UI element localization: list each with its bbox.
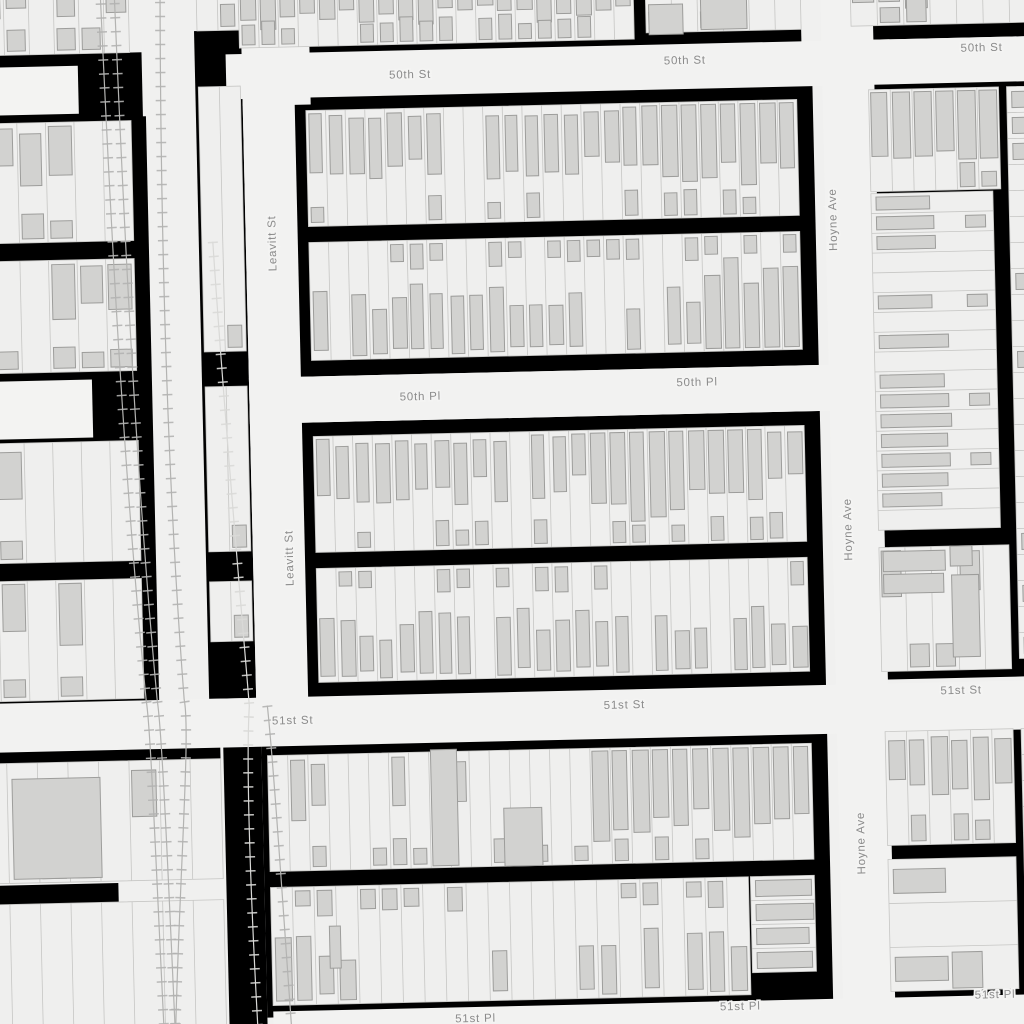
building <box>504 807 543 866</box>
building <box>558 19 571 38</box>
building <box>952 574 981 657</box>
building <box>52 264 76 319</box>
map-rotated-layer: 50th St50th St50th St50th Pl50th Pl51st … <box>0 0 1024 1024</box>
building <box>604 111 619 163</box>
building <box>356 443 369 502</box>
building <box>711 516 724 540</box>
building <box>783 266 800 346</box>
building <box>437 0 452 8</box>
building <box>882 473 948 487</box>
building <box>51 221 73 239</box>
building <box>1013 143 1024 160</box>
building <box>508 242 521 258</box>
building <box>262 21 275 45</box>
building <box>879 334 949 349</box>
building <box>880 374 944 388</box>
building <box>329 115 343 174</box>
building <box>510 305 524 346</box>
building <box>595 0 611 10</box>
building <box>569 293 583 347</box>
building <box>655 837 669 860</box>
street-label: 50th St <box>960 42 1002 55</box>
building <box>470 295 484 350</box>
building <box>881 413 952 428</box>
building <box>960 162 975 186</box>
building <box>439 17 452 41</box>
building <box>457 569 470 588</box>
building <box>410 244 423 269</box>
building <box>0 352 18 370</box>
open-parcel <box>0 66 79 117</box>
building <box>649 4 684 35</box>
building <box>339 572 352 586</box>
building <box>667 287 681 344</box>
building <box>771 624 786 665</box>
building <box>642 106 658 165</box>
building <box>410 284 424 349</box>
building <box>309 114 323 173</box>
building <box>556 620 571 671</box>
building <box>311 764 325 805</box>
building <box>783 234 796 252</box>
street-label: 50th Pl <box>676 376 718 389</box>
building <box>743 197 756 213</box>
building <box>0 129 13 166</box>
building <box>111 349 133 367</box>
building <box>655 616 668 671</box>
building <box>517 608 530 667</box>
building <box>851 0 873 3</box>
building <box>696 839 710 859</box>
building <box>529 305 543 347</box>
building <box>575 846 588 861</box>
building <box>757 951 813 968</box>
building <box>242 25 255 45</box>
building <box>534 520 547 544</box>
building <box>382 889 397 910</box>
building <box>649 432 666 518</box>
street-label: 51st St <box>940 684 982 697</box>
building <box>6 0 26 8</box>
building <box>430 749 459 866</box>
building <box>664 193 677 216</box>
building <box>329 926 341 968</box>
building <box>957 90 976 159</box>
building <box>616 616 630 672</box>
building <box>979 90 998 158</box>
building <box>427 114 442 175</box>
building <box>709 932 724 992</box>
building <box>359 571 372 588</box>
building <box>220 4 234 26</box>
street-label: 51st Pl <box>975 989 1016 1002</box>
building <box>536 0 552 22</box>
building <box>19 134 41 186</box>
building <box>82 352 104 368</box>
building <box>567 240 580 261</box>
building <box>358 532 371 547</box>
building <box>496 0 511 11</box>
building <box>672 525 685 541</box>
building <box>578 16 591 37</box>
building <box>892 92 911 158</box>
building <box>451 296 465 354</box>
building <box>755 879 811 896</box>
building <box>681 105 697 182</box>
building <box>871 92 888 156</box>
building <box>313 846 327 866</box>
building <box>793 626 809 667</box>
building <box>499 14 512 39</box>
building <box>878 0 900 2</box>
building <box>340 960 357 1000</box>
building <box>734 618 748 669</box>
building <box>685 238 698 261</box>
building <box>317 890 332 916</box>
building <box>705 236 718 254</box>
building <box>592 751 610 842</box>
building <box>387 113 403 167</box>
building <box>527 193 540 218</box>
building <box>59 583 83 645</box>
building <box>358 0 374 22</box>
building <box>615 0 630 6</box>
building <box>759 103 776 163</box>
parcel-row <box>849 0 1024 26</box>
building <box>590 433 606 504</box>
building <box>880 7 900 22</box>
building <box>632 750 650 832</box>
building <box>439 613 452 673</box>
street-label: Hoyne Ave <box>855 812 868 875</box>
building <box>275 938 292 1002</box>
building <box>447 887 462 911</box>
building <box>492 951 507 991</box>
open-parcel <box>0 379 93 441</box>
building <box>579 946 594 990</box>
building <box>497 617 512 675</box>
building <box>494 441 508 501</box>
building <box>430 294 443 349</box>
building <box>400 17 413 42</box>
building <box>415 444 428 489</box>
building <box>404 888 419 906</box>
building <box>473 440 487 477</box>
building <box>623 107 637 165</box>
building <box>48 126 72 175</box>
building <box>544 114 559 172</box>
building <box>296 936 312 1000</box>
building <box>787 432 802 474</box>
building <box>675 631 690 669</box>
street-label: 51st St <box>272 715 314 728</box>
building <box>750 517 763 539</box>
building <box>299 0 315 13</box>
building <box>613 521 626 542</box>
building <box>360 889 375 909</box>
building <box>518 23 531 38</box>
building <box>587 240 600 257</box>
building <box>320 618 336 676</box>
street-label: Hoyne Ave <box>842 498 855 561</box>
building <box>791 561 804 585</box>
building <box>536 630 550 670</box>
building <box>538 20 551 38</box>
building <box>723 190 736 214</box>
building <box>621 883 636 898</box>
building <box>290 760 305 821</box>
building <box>488 202 501 218</box>
building <box>414 848 427 864</box>
building <box>877 235 936 249</box>
building <box>596 621 609 666</box>
building <box>884 573 944 593</box>
building <box>61 677 83 696</box>
building <box>756 903 814 920</box>
building <box>893 868 946 893</box>
building <box>880 393 948 408</box>
building <box>82 28 100 50</box>
building <box>700 0 747 30</box>
building <box>627 309 641 349</box>
building <box>914 91 933 156</box>
building <box>606 240 619 260</box>
building <box>240 0 256 20</box>
building <box>626 239 639 259</box>
building <box>279 0 295 17</box>
building <box>687 302 701 343</box>
building <box>950 546 972 566</box>
building <box>341 620 356 676</box>
building <box>373 309 388 354</box>
building <box>708 881 723 907</box>
building <box>535 567 548 591</box>
building <box>457 617 470 674</box>
street-label: 50th Pl <box>400 391 442 404</box>
building <box>757 927 810 944</box>
building <box>457 0 472 10</box>
building <box>555 567 568 592</box>
building <box>316 439 330 495</box>
building <box>615 839 629 861</box>
building <box>7 30 25 51</box>
building <box>693 749 709 809</box>
street-label: 51st Pl <box>720 1000 761 1013</box>
street-label: Leavitt St <box>283 530 296 586</box>
building <box>882 453 951 468</box>
building <box>684 189 697 215</box>
building <box>982 171 997 186</box>
building <box>883 493 942 507</box>
map-viewport[interactable]: 50th St50th St50th St50th Pl50th Pl51st … <box>0 0 1024 1024</box>
building <box>793 746 809 813</box>
building <box>313 291 328 350</box>
building <box>688 431 705 490</box>
building <box>965 215 985 227</box>
building <box>594 566 607 589</box>
building <box>489 287 504 352</box>
building <box>360 24 373 42</box>
building <box>740 103 757 184</box>
street-label: Leavitt St <box>266 215 279 271</box>
building <box>767 432 781 478</box>
building <box>553 437 567 492</box>
building <box>695 628 708 668</box>
building <box>548 241 561 258</box>
building <box>753 747 770 824</box>
building <box>22 214 44 239</box>
building <box>505 115 518 171</box>
building <box>967 294 987 306</box>
building <box>910 644 930 667</box>
building <box>971 452 991 464</box>
building <box>909 740 925 785</box>
street-label: 50th St <box>664 54 706 67</box>
building <box>931 736 949 794</box>
building <box>644 928 659 988</box>
building <box>564 115 578 174</box>
building <box>633 525 646 542</box>
building <box>436 520 449 545</box>
building <box>572 434 586 475</box>
building <box>1012 91 1024 108</box>
building <box>752 606 766 667</box>
building <box>525 116 539 176</box>
building <box>435 441 450 488</box>
building <box>731 946 747 990</box>
building <box>889 741 906 780</box>
building <box>747 429 762 499</box>
building <box>1 541 23 559</box>
building <box>311 207 324 222</box>
building <box>420 21 433 41</box>
building <box>911 815 926 841</box>
building <box>995 738 1012 783</box>
building <box>392 757 406 806</box>
building <box>295 891 310 906</box>
street-label: 51st Pl <box>455 1012 496 1024</box>
building <box>584 112 599 157</box>
building <box>661 105 678 177</box>
building <box>643 883 658 905</box>
building <box>57 28 75 50</box>
building <box>906 0 926 22</box>
building <box>969 393 989 405</box>
building <box>686 882 701 897</box>
building <box>408 116 422 159</box>
building <box>687 933 703 989</box>
building <box>895 956 948 981</box>
building <box>56 0 74 17</box>
building <box>728 430 744 493</box>
building <box>392 298 407 349</box>
building <box>456 530 469 545</box>
building <box>612 750 628 829</box>
building <box>556 0 571 14</box>
building <box>360 636 374 671</box>
building <box>1012 117 1024 133</box>
street-label: Hoyne Ave <box>827 188 840 251</box>
building <box>610 432 626 504</box>
street-label: 51st St <box>604 699 646 712</box>
building <box>704 275 721 348</box>
building <box>773 747 790 819</box>
building <box>4 680 26 698</box>
building <box>669 431 685 510</box>
building <box>380 640 393 678</box>
building <box>319 0 335 19</box>
building <box>475 521 488 545</box>
building <box>2 584 26 631</box>
building <box>489 242 502 266</box>
building <box>652 750 669 818</box>
building <box>876 216 934 230</box>
building <box>281 29 294 44</box>
building <box>12 777 102 879</box>
building <box>454 443 468 504</box>
building <box>713 748 730 830</box>
building <box>733 748 750 838</box>
building <box>336 446 349 498</box>
building <box>763 268 780 347</box>
building <box>496 568 509 587</box>
building <box>973 737 989 800</box>
building <box>430 244 443 261</box>
building <box>720 104 736 163</box>
building <box>701 104 718 178</box>
building <box>400 624 415 672</box>
building <box>81 266 103 303</box>
building <box>53 347 75 368</box>
building <box>625 190 638 215</box>
building <box>486 116 500 179</box>
building <box>391 244 404 261</box>
building <box>708 430 725 493</box>
building <box>602 945 617 994</box>
building <box>369 118 382 179</box>
building <box>936 91 955 151</box>
building <box>395 441 409 500</box>
building <box>1017 351 1024 368</box>
building <box>349 118 365 174</box>
building <box>0 452 22 499</box>
building <box>883 550 945 571</box>
building <box>228 325 242 347</box>
building <box>952 951 983 988</box>
building <box>975 820 990 840</box>
building <box>380 23 393 42</box>
building <box>531 435 544 499</box>
building <box>338 0 353 10</box>
building <box>549 305 564 345</box>
building <box>779 103 794 169</box>
building <box>770 512 783 538</box>
building <box>954 814 969 840</box>
building <box>876 196 930 210</box>
map-canvas[interactable]: 50th St50th St50th St50th Pl50th Pl51st … <box>0 0 1024 1024</box>
building <box>352 295 367 356</box>
building <box>437 569 450 592</box>
building <box>744 235 757 253</box>
building <box>479 18 492 39</box>
building <box>477 0 493 5</box>
building <box>672 749 688 826</box>
building <box>724 258 740 348</box>
building <box>744 283 760 348</box>
building <box>419 611 433 673</box>
building <box>106 0 126 13</box>
building <box>375 444 390 503</box>
